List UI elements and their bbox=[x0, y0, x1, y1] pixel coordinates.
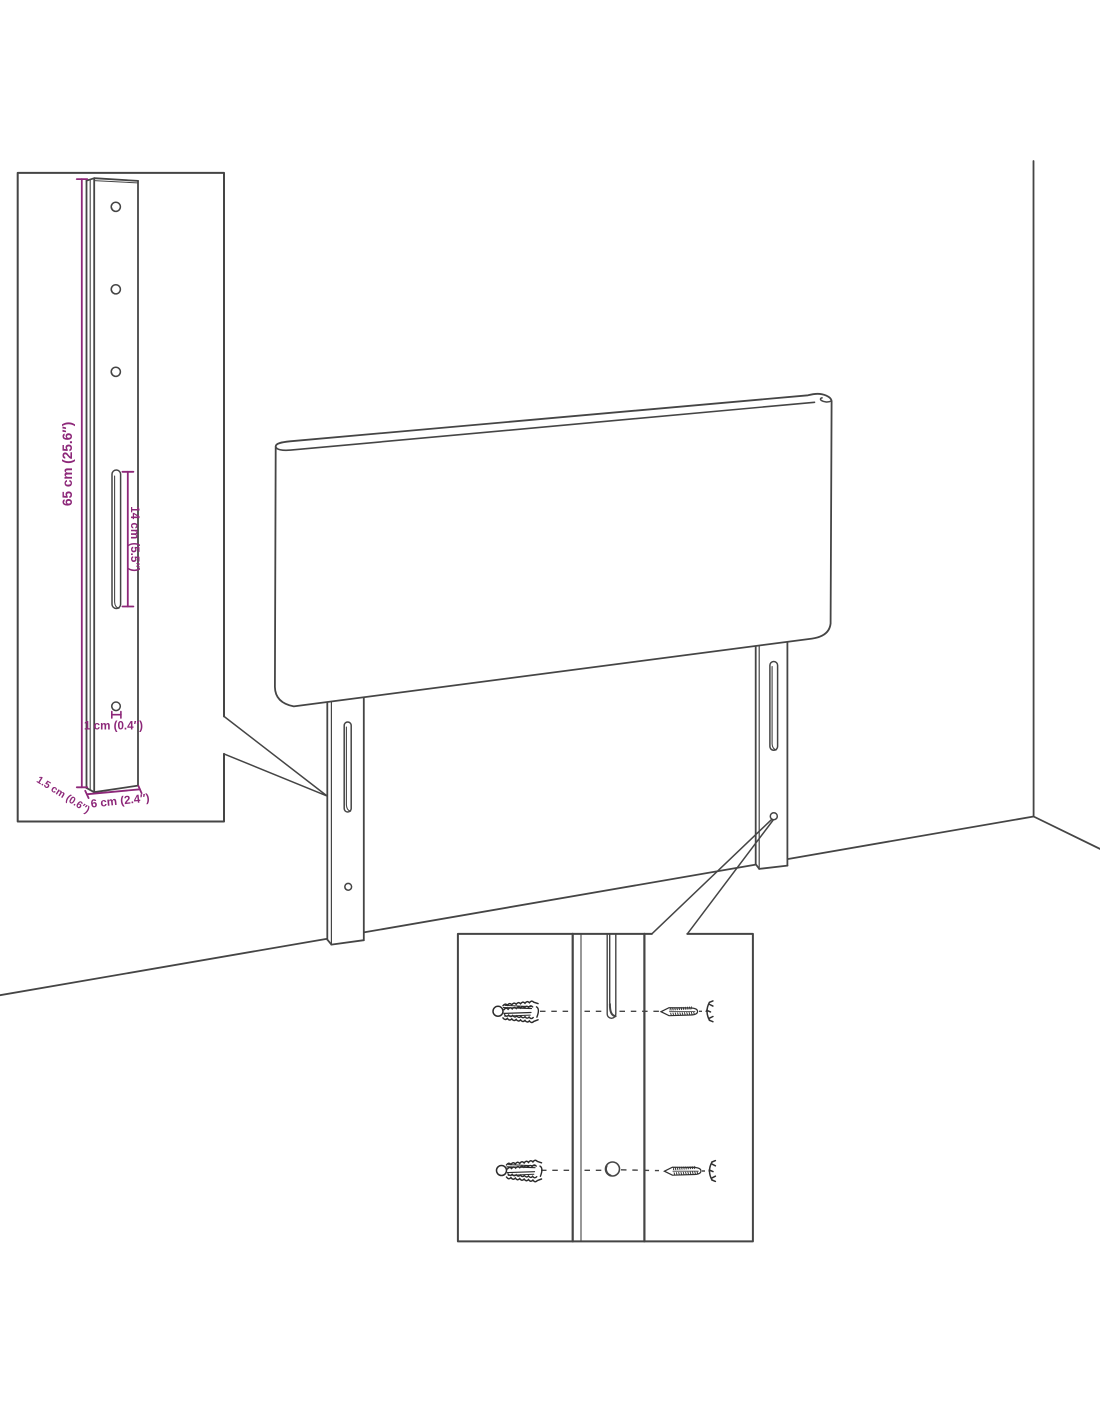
svg-text:65 cm (25.6″): 65 cm (25.6″) bbox=[60, 422, 75, 506]
svg-text:14 cm (5.5″): 14 cm (5.5″) bbox=[128, 506, 141, 572]
svg-text:6 cm (2.4″): 6 cm (2.4″) bbox=[90, 791, 150, 810]
svg-text:1.5 cm (0.6″): 1.5 cm (0.6″) bbox=[34, 775, 91, 816]
svg-text:1 cm (0.4″): 1 cm (0.4″) bbox=[84, 720, 143, 733]
